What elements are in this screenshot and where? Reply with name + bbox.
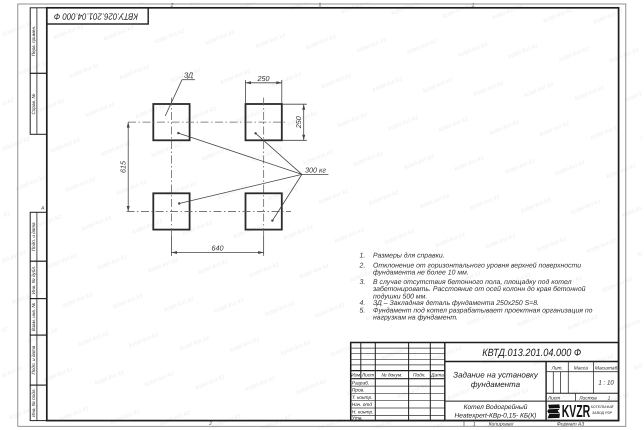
svg-text:Котел Водогрейный: Котел Водогрейный: [464, 404, 528, 411]
svg-text:ЗАВОД РЗР: ЗАВОД РЗР: [592, 411, 613, 415]
svg-text:Подп. и дата: Подп. и дата: [31, 222, 36, 251]
svg-text:250: 250: [257, 74, 270, 83]
svg-text:4.: 4.: [360, 300, 366, 307]
svg-text:1.: 1.: [360, 252, 366, 259]
svg-text:1: 1: [473, 422, 476, 428]
svg-text:ЗД – Закладная деталь фундамен: ЗД – Закладная деталь фундамента 250х250…: [373, 300, 539, 307]
svg-text:KVZR: KVZR: [562, 401, 591, 421]
svg-text:забетонировать. Расстояние от: забетонировать. Расстояние от осей колон…: [372, 285, 586, 293]
svg-text:Справ. №: Справ. №: [31, 94, 36, 115]
svg-text:640: 640: [212, 244, 224, 253]
svg-text:2: 2: [208, 421, 212, 427]
svg-text:ЗД: ЗД: [184, 71, 193, 80]
svg-text:Инв. № дубл.: Инв. № дубл.: [31, 266, 36, 294]
svg-text:Heatexpert-КВр-0,15- КБ(К): Heatexpert-КВр-0,15- КБ(К): [455, 412, 537, 419]
svg-text:Утв.: Утв.: [352, 415, 363, 421]
svg-text:Копировал: Копировал: [489, 422, 514, 428]
svg-text:Разраб.: Разраб.: [352, 380, 369, 386]
svg-text:В случае отсутствия бетонного: В случае отсутствия бетонного пола, площ…: [373, 278, 572, 286]
svg-text:Размеры для справки.: Размеры для справки.: [373, 252, 445, 259]
svg-text:№ докум.: № докум.: [381, 373, 402, 379]
svg-text:КВТД.013.201.04.000 Ф: КВТД.013.201.04.000 Ф: [482, 347, 581, 359]
svg-text:Фундамент под котел разрабатыв: Фундамент под котел разрабатывает проект…: [373, 306, 593, 314]
svg-text:Масштаб: Масштаб: [595, 366, 618, 372]
svg-text:Задание на установку: Задание на установку: [453, 370, 539, 379]
svg-text:КОТЕЛЬНЫЙ: КОТЕЛЬНЫЙ: [591, 404, 614, 409]
svg-text:Н. контр.: Н. контр.: [352, 410, 374, 416]
svg-text:нагрузкам на фундамент.: нагрузкам на фундамент.: [373, 315, 458, 322]
svg-text:1: 1: [608, 395, 611, 401]
svg-text:Формат А3: Формат А3: [557, 422, 585, 428]
svg-text:Лит.: Лит.: [551, 366, 563, 372]
svg-text:Масса: Масса: [574, 366, 589, 372]
svg-text:Подп.: Подп.: [413, 373, 426, 379]
svg-text:2: 2: [170, 2, 174, 8]
svg-text:Пров.: Пров.: [352, 388, 365, 394]
svg-text:фундамента: фундамента: [471, 380, 521, 389]
svg-text:250: 250: [294, 116, 303, 129]
svg-text:615: 615: [119, 160, 128, 173]
svg-text:Лист: Лист: [547, 395, 560, 401]
svg-text:Взам. инв. №: Взам. инв. №: [31, 303, 36, 331]
svg-text:2.: 2.: [359, 263, 366, 270]
svg-text:Перв. примен.: Перв. примен.: [31, 26, 36, 57]
svg-text:КВТУ.026.201.04.000 Ф: КВТУ.026.201.04.000 Ф: [54, 12, 138, 22]
svg-text:Изм: Изм: [351, 373, 361, 379]
svg-text:300 кг: 300 кг: [305, 166, 326, 175]
svg-text:1: 1: [472, 2, 475, 8]
svg-text:Т. контр.: Т. контр.: [352, 395, 373, 401]
svg-text:5.: 5.: [360, 307, 366, 314]
svg-text:3.: 3.: [360, 279, 366, 286]
svg-text:Отклонение от горизонтального: Отклонение от горизонтального уровня вер…: [373, 262, 581, 270]
svg-text:Подп. и дата: Подп. и дата: [31, 345, 36, 374]
svg-text:1 : 10: 1 : 10: [598, 380, 614, 387]
svg-text:Дата: Дата: [430, 373, 444, 379]
svg-text:Нач. отд: Нач. отд: [352, 402, 373, 408]
svg-text:Лист: Лист: [361, 373, 374, 379]
svg-text:фундамента не более 10 мм.: фундамента не более 10 мм.: [373, 269, 469, 277]
svg-text:Инв. № подл.: Инв. № подл.: [31, 388, 36, 417]
svg-text:А: А: [40, 206, 45, 212]
